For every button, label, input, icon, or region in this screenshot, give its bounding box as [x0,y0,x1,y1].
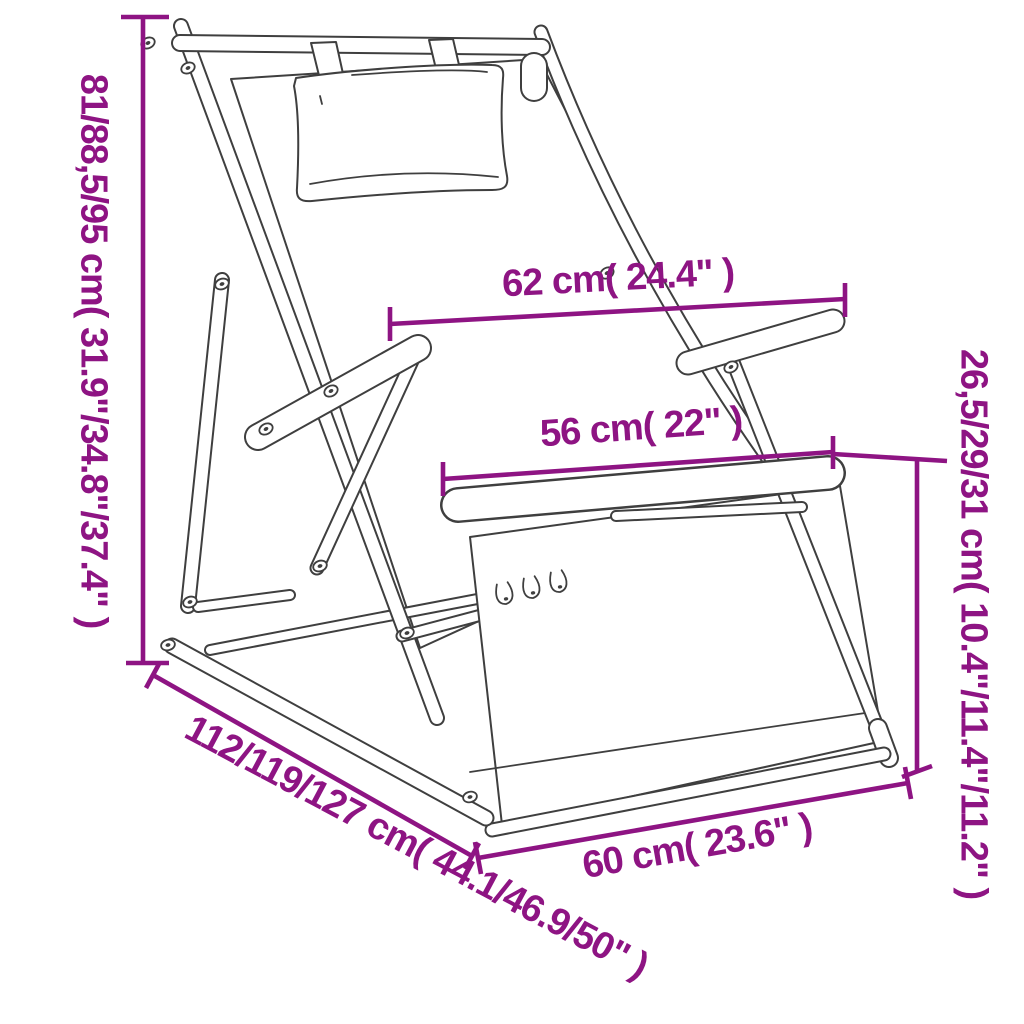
seat-height-dimension-label: 26,5/29/31 cm( 10.4"/11.4"/11.2" ) [953,349,995,899]
seat-fabric [470,486,883,825]
dimension-diagram-page: 81/88,5/95 cm( 31.9"/34.8"/37.4" ) 62 cm… [0,0,1024,1024]
deck-chair-dimension-diagram: 81/88,5/95 cm( 31.9"/34.8"/37.4" ) 62 cm… [0,0,1024,1024]
height-dimension-line [121,17,169,663]
height-dimension-label: 81/88,5/95 cm( 31.9"/34.8"/37.4" ) [73,74,115,629]
deck-chair-drawing [139,26,889,830]
seat-height-dimension-line [902,459,932,777]
